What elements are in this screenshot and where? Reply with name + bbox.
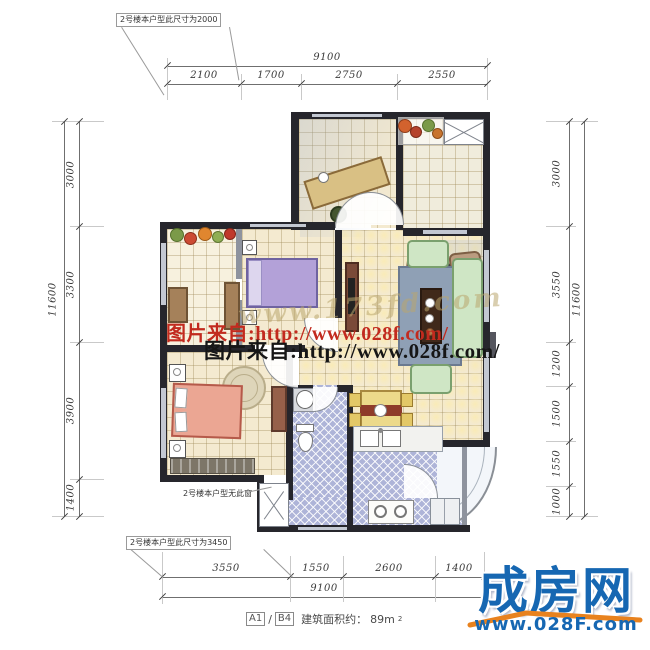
window — [250, 224, 306, 227]
dim-line — [162, 577, 485, 578]
window — [161, 388, 166, 458]
dresser-mirror — [271, 386, 287, 432]
dim-seg: 2600 — [361, 563, 417, 574]
dim-total-top: 9100 — [295, 52, 359, 63]
dim-seg: 1700 — [243, 70, 299, 81]
wall — [291, 112, 299, 227]
window-box — [259, 483, 289, 527]
wardrobe-strip — [170, 458, 255, 474]
partition — [462, 447, 467, 525]
dim-seg: 2100 — [176, 70, 232, 81]
floorplan-page: www.173fd.com 图片来自:http://www.028f.com/ … — [0, 0, 650, 650]
extension-line — [546, 226, 576, 227]
plant — [224, 228, 236, 240]
wall — [437, 440, 490, 447]
wall — [347, 385, 353, 532]
burner — [394, 505, 407, 518]
area-sup: 2 — [398, 615, 402, 623]
window — [161, 243, 166, 305]
sofa-single — [410, 364, 452, 394]
dim-total-right: 11600 — [572, 276, 583, 324]
extension-line — [546, 121, 598, 122]
faucet — [378, 428, 383, 433]
dim-seg: 1400 — [66, 474, 77, 522]
dining-chair — [401, 393, 413, 407]
lamp — [173, 444, 181, 452]
area-label: 建筑面积约： — [301, 611, 367, 627]
unit-code-b: B4 — [275, 612, 294, 626]
extension-line — [70, 342, 104, 343]
extension-line — [70, 226, 104, 227]
logo-url-text: www.028F.com — [462, 614, 650, 635]
dim-total-left: 11600 — [48, 276, 59, 324]
leader-line — [130, 549, 162, 577]
extension-line — [241, 74, 242, 100]
logo-brand-text: 成房网 — [462, 566, 650, 616]
pillow — [174, 412, 187, 433]
plant — [170, 228, 184, 242]
caption-separator: / — [268, 613, 272, 626]
dim-line — [584, 122, 585, 517]
burner — [374, 505, 387, 518]
dim-line — [79, 122, 80, 517]
lamp — [246, 244, 253, 251]
note-no-window: 2号楼本户型无此窗 — [183, 488, 252, 499]
plate — [374, 404, 387, 417]
plant — [198, 227, 212, 241]
plan-caption: A1/B4 建筑面积约：89m2 — [246, 611, 402, 627]
unit-code-a: A1 — [246, 612, 265, 626]
fridge-divider — [444, 499, 445, 524]
kitchen-sink — [360, 430, 379, 447]
note-bottom-dimension: 2号楼本户型此尺寸为3450 — [126, 536, 231, 550]
dining-chair — [349, 393, 361, 407]
dim-seg: 3000 — [552, 150, 563, 198]
plant — [212, 231, 224, 243]
dim-seg: 1000 — [552, 478, 563, 526]
leader-line — [121, 27, 164, 95]
dining-chair — [349, 413, 361, 427]
extension-line — [301, 74, 302, 100]
plant — [432, 128, 443, 139]
pillow — [174, 388, 187, 409]
dim-line — [167, 84, 487, 85]
dim-line — [167, 66, 487, 67]
fridge — [430, 498, 460, 525]
dim-seg: 3000 — [66, 151, 77, 199]
dim-seg: 1500 — [552, 390, 563, 438]
note-top-dimension: 2号楼本户型此尺寸为2000 — [116, 13, 221, 27]
area-value: 89m — [370, 613, 395, 626]
dim-seg: 3300 — [66, 261, 77, 309]
dim-total-bottom: 9100 — [292, 583, 356, 594]
dim-seg: 1200 — [552, 340, 563, 388]
dim-seg: 2550 — [414, 70, 470, 81]
kitchen-sink — [382, 430, 401, 447]
extension-line — [397, 74, 398, 100]
toilet-tank — [296, 424, 314, 432]
site-logo: 成房网 www.028F.com — [462, 566, 650, 635]
dining-chair — [401, 413, 413, 427]
wall — [160, 475, 263, 482]
dim-seg: 3550 — [552, 261, 563, 309]
plant — [410, 126, 422, 138]
dim-seg: 3900 — [66, 387, 77, 435]
window — [312, 114, 382, 117]
dim-line — [162, 597, 485, 598]
entry-floor — [288, 497, 347, 525]
dim-seg: 1550 — [288, 563, 344, 574]
window-seat-box — [444, 119, 484, 145]
lamp — [173, 368, 181, 376]
sofa-single — [407, 240, 449, 268]
dim-seg: 3550 — [198, 563, 254, 574]
wall — [337, 385, 347, 392]
plant — [184, 232, 197, 245]
dim-line — [569, 122, 570, 517]
window — [423, 230, 467, 234]
dim-seg: 2750 — [321, 70, 377, 81]
watermark-black: 图片来自:http://www.028f.com/ — [204, 335, 500, 365]
window — [298, 527, 353, 530]
bath-sink — [296, 390, 314, 409]
